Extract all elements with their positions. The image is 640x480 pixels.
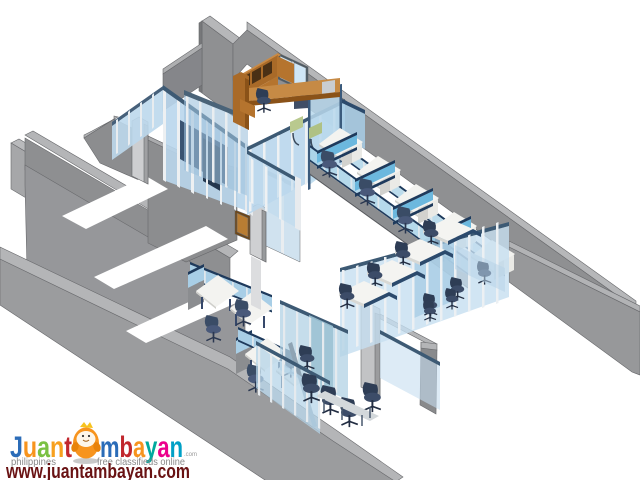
svg-text:www.juantambayan.com: www.juantambayan.com [5, 461, 190, 480]
svg-text:.com: .com [184, 452, 197, 458]
